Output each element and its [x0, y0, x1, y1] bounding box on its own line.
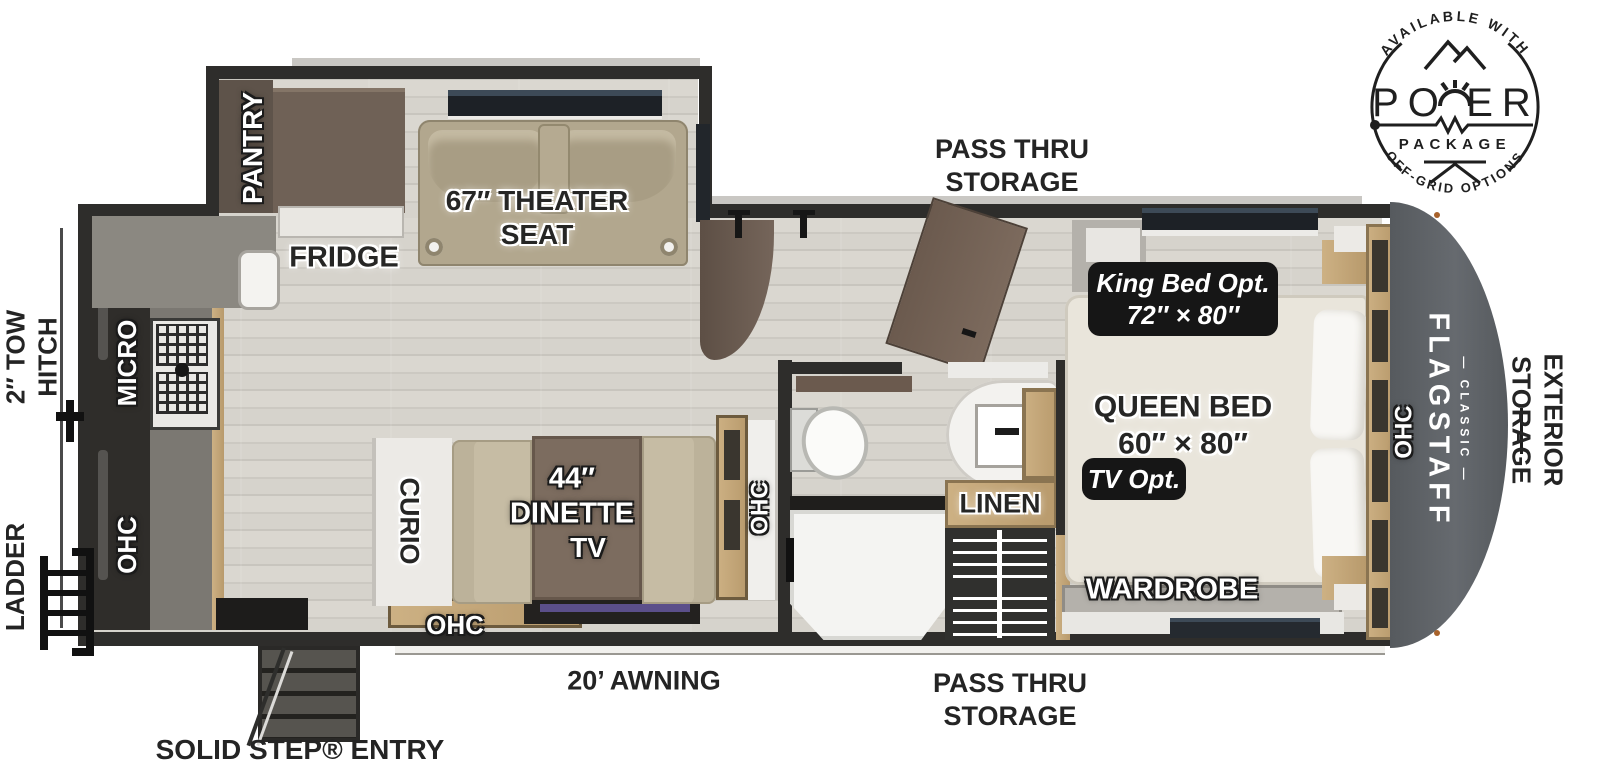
- hall-shelf-cutout: [724, 500, 740, 550]
- ladder-icon: [40, 556, 94, 650]
- hall-shelf-cutout: [724, 430, 740, 480]
- label-ladder: LADDER: [0, 523, 32, 631]
- window: [696, 124, 710, 222]
- nightstand-top: [1334, 584, 1366, 610]
- label-pass-thru-storage-top: PASS THRU STORAGE: [935, 133, 1089, 199]
- logo-title-left: PO: [1372, 81, 1448, 125]
- label-pantry: PANTRY: [236, 92, 270, 204]
- cap-marker: [1434, 212, 1440, 218]
- label-theater-seat: 67″ THEATER SEAT: [446, 184, 628, 252]
- bed-frame-cutout: [1372, 588, 1388, 628]
- label-fridge: FRIDGE: [289, 240, 399, 275]
- kitchen-sink: [238, 250, 280, 310]
- bath-counter: [796, 376, 912, 392]
- wardrobe-top-cabinet-door: [1086, 228, 1140, 262]
- label-solid-step-entry: SOLID STEP® ENTRY: [156, 733, 445, 767]
- ladder-bracket: [72, 548, 94, 556]
- label-curio: CURIO: [393, 478, 426, 565]
- label-ohc-bed: OHC: [1389, 405, 1418, 458]
- stove-burner-grid: [156, 324, 208, 366]
- pillow: [1310, 309, 1369, 441]
- label-ohc-hall: OHC: [745, 481, 774, 534]
- bed-frame-cutout: [1372, 310, 1388, 362]
- window: [1170, 618, 1320, 638]
- window: [448, 90, 662, 119]
- label-queen-bed: QUEEN BED 60″ × 80″: [1094, 389, 1272, 462]
- label-exterior-storage: EXTERIOR STORAGE: [1505, 354, 1568, 487]
- shower-handle: [786, 538, 794, 582]
- label-micro: MICRO: [112, 320, 144, 407]
- medicine-cabinet: [1022, 388, 1058, 480]
- logo-subtitle: PACKAGE: [1399, 136, 1511, 153]
- vanity-shelf: [948, 362, 1048, 378]
- cupholder: [425, 238, 443, 256]
- cupholder: [660, 238, 678, 256]
- slideout-top-wall: [206, 66, 712, 79]
- king-bed-option-badge: King Bed Opt. 72″ × 80″: [1088, 262, 1278, 336]
- linen-post: [997, 530, 1002, 638]
- floorplan-canvas: AVAILABLE WITH OFF-GRID OPTIONS PO ER PA…: [0, 0, 1600, 779]
- entry-mat: [216, 598, 308, 630]
- tow-hitch-icon: [56, 412, 84, 421]
- stove-knob: [175, 363, 189, 377]
- logo-title-right: ER: [1466, 81, 1540, 125]
- label-tv: TV: [570, 531, 606, 565]
- window: [1142, 208, 1318, 230]
- bed-frame-cutout: [1372, 380, 1388, 432]
- door-stop: [800, 214, 807, 238]
- kitchen-cabinet-door: [98, 450, 108, 580]
- label-tow-hitch: 2″ TOW HITCH: [0, 310, 63, 404]
- label-awning: 20’ AWNING: [567, 665, 721, 698]
- tv-option-badge: TV Opt.: [1082, 458, 1186, 500]
- nightstand-top: [1334, 226, 1366, 252]
- slideout-left-wall: [206, 66, 219, 216]
- entry-steps: [258, 646, 360, 742]
- window-sill: [1142, 230, 1318, 236]
- roofline-strip: [292, 58, 700, 66]
- label-linen: LINEN: [960, 488, 1041, 521]
- svg-text:OFF-GRID OPTIONS: OFF-GRID OPTIONS: [1383, 148, 1527, 196]
- dinette-bench: [642, 436, 716, 604]
- faucet: [995, 428, 1019, 435]
- bathroom-sink: [975, 404, 1027, 468]
- power-package-logo: AVAILABLE WITH OFF-GRID OPTIONS PO ER PA…: [1352, 2, 1558, 210]
- tv-screen: [540, 604, 690, 612]
- bath-top-wall: [792, 362, 902, 374]
- cap-marker: [1434, 630, 1440, 636]
- tow-hitch-icon: [66, 400, 74, 442]
- awning-strip: [395, 646, 1385, 655]
- logo-arc-bottom: OFF-GRID OPTIONS: [1383, 148, 1527, 196]
- ladder-bracket: [72, 648, 94, 656]
- shower-pan: [790, 510, 958, 640]
- bed-frame-cutout: [1372, 520, 1388, 572]
- stove-burner-grid: [156, 372, 208, 414]
- label-wardrobe: WARDROBE: [1086, 572, 1258, 607]
- shower-rim: [790, 496, 958, 512]
- fridge-counter: [278, 206, 404, 238]
- brand-flagstaff: FLAGSTAFF: [1420, 312, 1455, 527]
- brand-classic: — CLASSIC —: [1457, 356, 1472, 483]
- door-stop: [735, 214, 742, 238]
- label-ohc-kitchen: OHC: [112, 516, 144, 574]
- label-dinette: 44″ DINETTE: [510, 462, 634, 533]
- bed-frame-cutout: [1372, 450, 1388, 502]
- fridge-cabinet: [273, 88, 405, 213]
- label-pass-thru-storage-bottom: PASS THRU STORAGE: [933, 667, 1087, 733]
- label-ohc-dinette: OHC: [426, 610, 484, 642]
- bed-frame-cutout: [1372, 240, 1388, 292]
